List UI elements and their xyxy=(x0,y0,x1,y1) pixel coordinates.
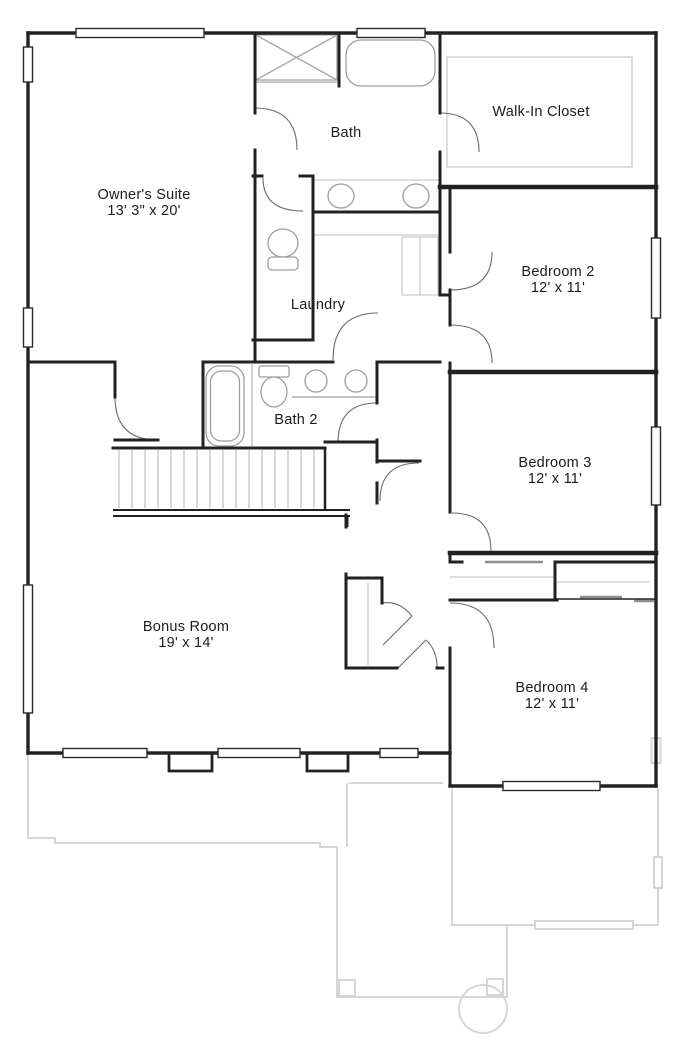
exterior-walls xyxy=(28,33,656,786)
room-label-bedroom2: Bedroom 2 12' x 11' xyxy=(521,264,594,296)
room-label-owners-suite: Owner's Suite 13' 3" x 20' xyxy=(97,187,190,219)
room-label-walk-in-closet: Walk-In Closet xyxy=(492,104,589,120)
floor-plan-drawing xyxy=(0,0,687,1048)
room-dims: 12' x 11' xyxy=(518,471,591,487)
ghost-window xyxy=(654,857,662,888)
sink-icon xyxy=(345,370,367,392)
room-label-bonus-room: Bonus Room 19' x 14' xyxy=(143,619,229,651)
sink-icon xyxy=(403,184,429,208)
room-divider-walls xyxy=(440,187,656,553)
bay-bumpout xyxy=(307,753,348,771)
room-label-bedroom3: Bedroom 3 12' x 11' xyxy=(518,455,591,487)
door-leaf xyxy=(398,640,426,668)
ghost-circle-feature xyxy=(459,985,507,1033)
window xyxy=(380,749,418,758)
room-name: Owner's Suite xyxy=(97,187,190,203)
door-arc-stair-closet xyxy=(380,463,419,501)
bathtub-icon xyxy=(346,40,435,86)
window xyxy=(24,585,33,713)
room-label-bedroom4: Bedroom 4 12' x 11' xyxy=(515,680,588,712)
door-arc-bedroom3 xyxy=(452,513,491,551)
bay-bumpout xyxy=(169,753,212,771)
room-name: Bonus Room xyxy=(143,619,229,635)
window xyxy=(24,47,33,82)
sink-icon xyxy=(305,370,327,392)
door-arc-bedroom2 xyxy=(450,252,492,290)
window xyxy=(218,749,300,758)
bathtub-icon xyxy=(206,366,244,446)
door-arc-owners-bath xyxy=(255,108,297,150)
window xyxy=(24,308,33,347)
door-arc-walk-in-closet xyxy=(440,113,479,152)
door-arc-bonus-room xyxy=(426,640,437,667)
room-name: Bedroom 2 xyxy=(521,264,594,280)
room-label-laundry: Laundry xyxy=(291,297,345,313)
interior-walls xyxy=(28,33,656,786)
door-arc-owners-suite xyxy=(115,397,158,440)
porch-post xyxy=(339,980,355,996)
room-name: Walk-In Closet xyxy=(492,104,589,120)
room-dims: 13' 3" x 20' xyxy=(97,203,190,219)
door-arc-hall xyxy=(450,325,492,363)
room-dims: 19' x 14' xyxy=(143,635,229,651)
window xyxy=(76,29,204,38)
toilet-icon xyxy=(268,229,298,270)
door-arc-water-closet xyxy=(263,178,303,211)
door-arc-bedroom4 xyxy=(450,603,494,648)
door-arc-linen-closet xyxy=(382,603,412,616)
window xyxy=(503,782,600,791)
shower-icon xyxy=(256,35,337,82)
room-name: Bath xyxy=(331,125,362,141)
room-dims: 12' x 11' xyxy=(515,696,588,712)
room-dims: 12' x 11' xyxy=(521,280,594,296)
windows xyxy=(24,29,661,791)
window xyxy=(357,29,425,38)
window xyxy=(652,427,661,505)
room-label-bath: Bath xyxy=(331,125,362,141)
door-arc-laundry xyxy=(333,313,378,360)
room-name: Bath 2 xyxy=(274,412,317,428)
room-name: Laundry xyxy=(291,297,345,313)
door-arc-bath2 xyxy=(338,403,377,443)
sink-icon xyxy=(328,184,354,208)
fixtures xyxy=(206,35,435,446)
toilet-icon xyxy=(259,366,289,407)
window xyxy=(652,238,661,318)
stair-treads xyxy=(119,450,314,508)
room-name: Bedroom 4 xyxy=(515,680,588,696)
floor-plan: Owner's Suite 13' 3" x 20' Bath Walk-In … xyxy=(0,0,687,1048)
ghost-window xyxy=(535,921,633,929)
room-name: Bedroom 3 xyxy=(518,455,591,471)
room-label-bath2: Bath 2 xyxy=(274,412,317,428)
door-leaf xyxy=(383,616,412,645)
window xyxy=(63,749,147,758)
